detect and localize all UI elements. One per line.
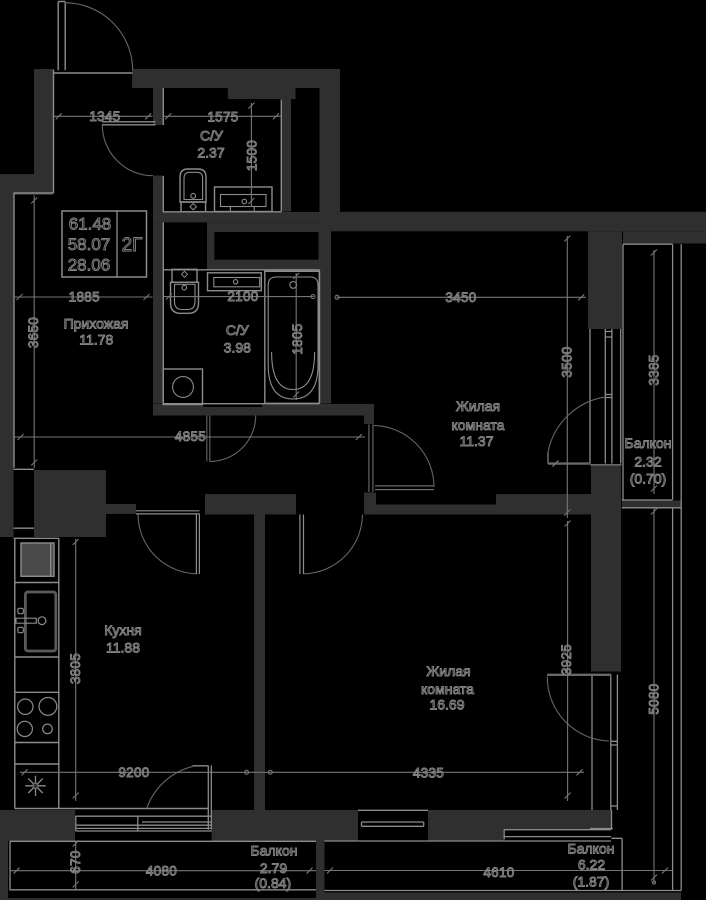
svg-text:(0.84): (0.84) [255,875,292,891]
svg-text:11.88: 11.88 [106,640,140,656]
svg-text:Балкон: Балкон [568,841,615,857]
svg-text:28.06: 28.06 [68,256,111,275]
svg-text:6.22: 6.22 [578,857,605,873]
svg-text:61.48: 61.48 [69,215,112,234]
svg-text:2.32: 2.32 [634,454,661,470]
svg-text:Кухня: Кухня [104,622,141,638]
svg-text:3450: 3450 [445,290,476,305]
svg-text:С/У: С/У [226,322,249,338]
svg-text:670: 670 [68,850,83,873]
svg-text:9200: 9200 [118,765,149,780]
svg-text:3.98: 3.98 [224,340,251,356]
svg-text:16.69: 16.69 [429,697,464,713]
svg-text:3650: 3650 [26,317,41,348]
svg-text:3925: 3925 [559,644,574,675]
svg-text:3385: 3385 [646,354,661,385]
svg-text:2.79: 2.79 [260,860,287,876]
svg-text:4610: 4610 [483,865,514,880]
svg-text:1345: 1345 [89,109,120,124]
svg-text:комната: комната [421,681,474,697]
svg-text:С/У: С/У [200,128,223,144]
svg-text:Жилая: Жилая [456,398,500,414]
svg-text:1885: 1885 [69,289,100,304]
svg-text:2Г: 2Г [122,235,143,256]
svg-text:2100: 2100 [227,289,258,304]
svg-text:Балкон: Балкон [251,843,298,859]
svg-text:Прихожая: Прихожая [64,316,129,332]
svg-text:2.37: 2.37 [197,145,224,161]
svg-text:11.37: 11.37 [460,433,494,449]
svg-text:5080: 5080 [647,683,662,714]
svg-text:4855: 4855 [175,429,206,444]
svg-text:Балкон: Балкон [625,435,672,451]
svg-text:58.07: 58.07 [68,235,111,254]
svg-text:1805: 1805 [290,323,305,354]
svg-text:1500: 1500 [244,140,259,171]
svg-text:3805: 3805 [68,653,83,684]
svg-text:(1.87): (1.87) [573,874,610,890]
svg-text:Жилая: Жилая [426,663,470,679]
svg-text:комната: комната [452,417,505,433]
svg-text:4335: 4335 [413,765,444,780]
svg-text:4080: 4080 [146,864,177,879]
svg-text:(0.70): (0.70) [630,471,667,487]
svg-text:11.78: 11.78 [79,332,113,348]
svg-text:1575: 1575 [207,110,238,125]
svg-text:3500: 3500 [560,346,575,377]
